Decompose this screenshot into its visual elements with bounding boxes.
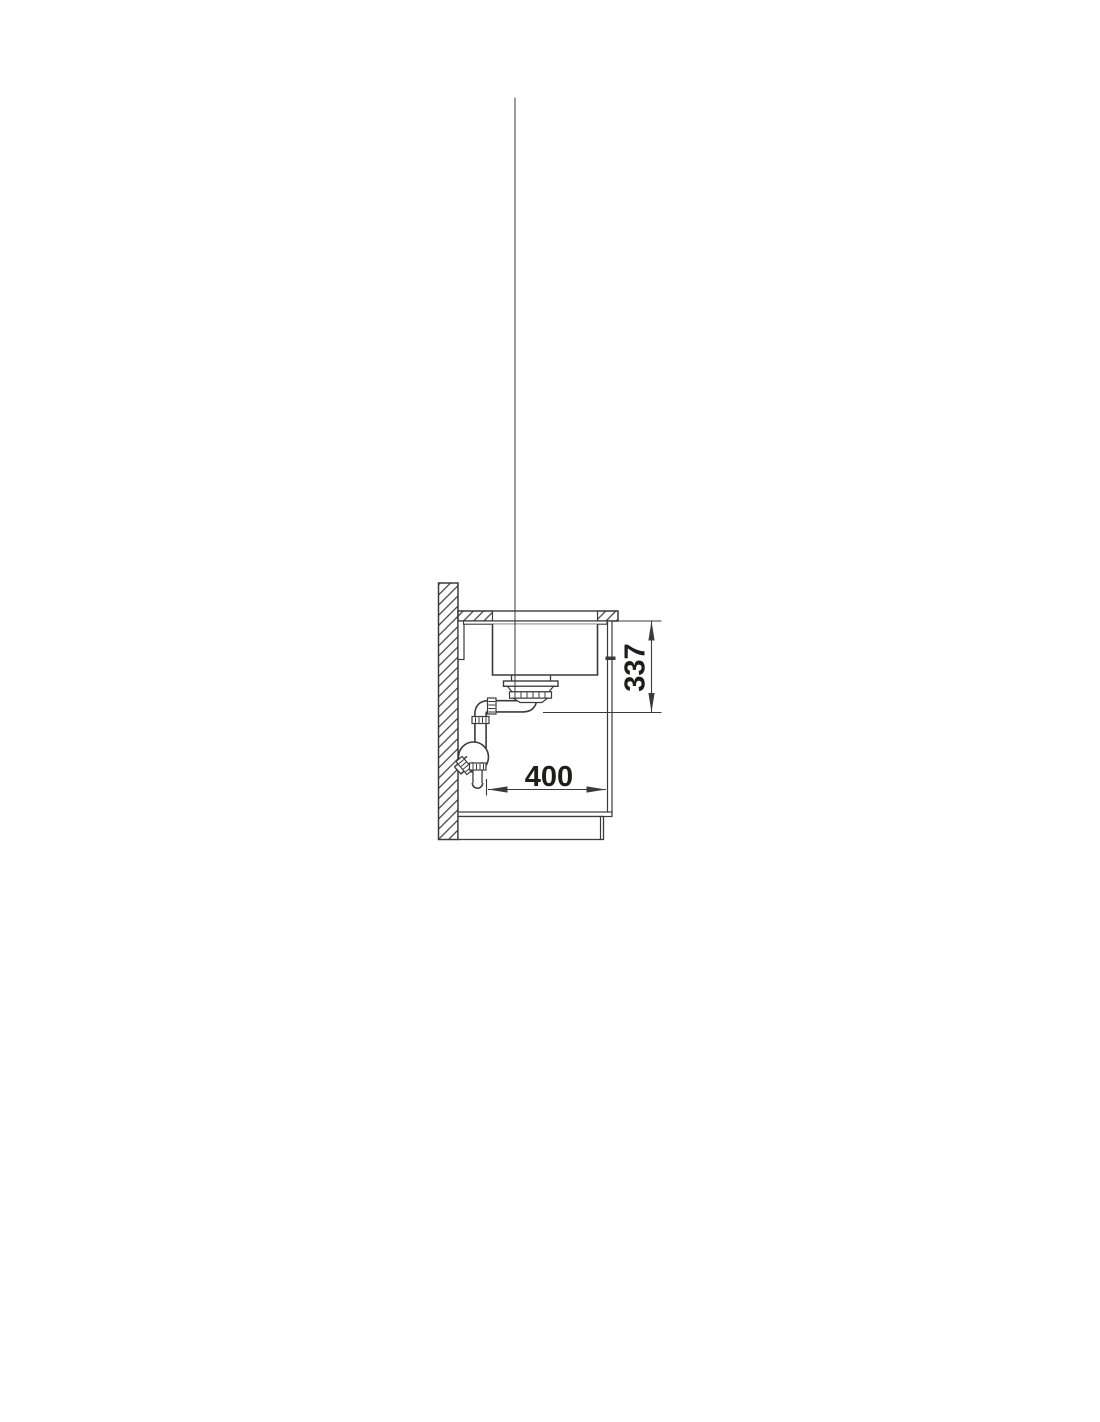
wall-batten (458, 621, 464, 660)
sink-section-drawing: 337 400 (0, 0, 1100, 1422)
mounting-clip (606, 657, 616, 661)
plinth (458, 817, 604, 840)
union-nut (470, 763, 487, 770)
cabinet-side-panel (608, 621, 613, 814)
sink-basin (493, 624, 598, 675)
wall-section (439, 583, 459, 840)
union-nut (472, 717, 489, 724)
diagram-canvas: 337 400 (0, 0, 1100, 1422)
dimension-label-vertical: 337 (620, 643, 652, 691)
pipe-end-cap (472, 783, 482, 788)
sink-rim (464, 621, 608, 624)
page-background (0, 0, 1100, 1422)
countertop-section (458, 611, 618, 621)
cabinet-bottom-panel (458, 812, 612, 817)
union-nut (488, 698, 497, 714)
dimension-label-horizontal: 400 (525, 761, 573, 793)
